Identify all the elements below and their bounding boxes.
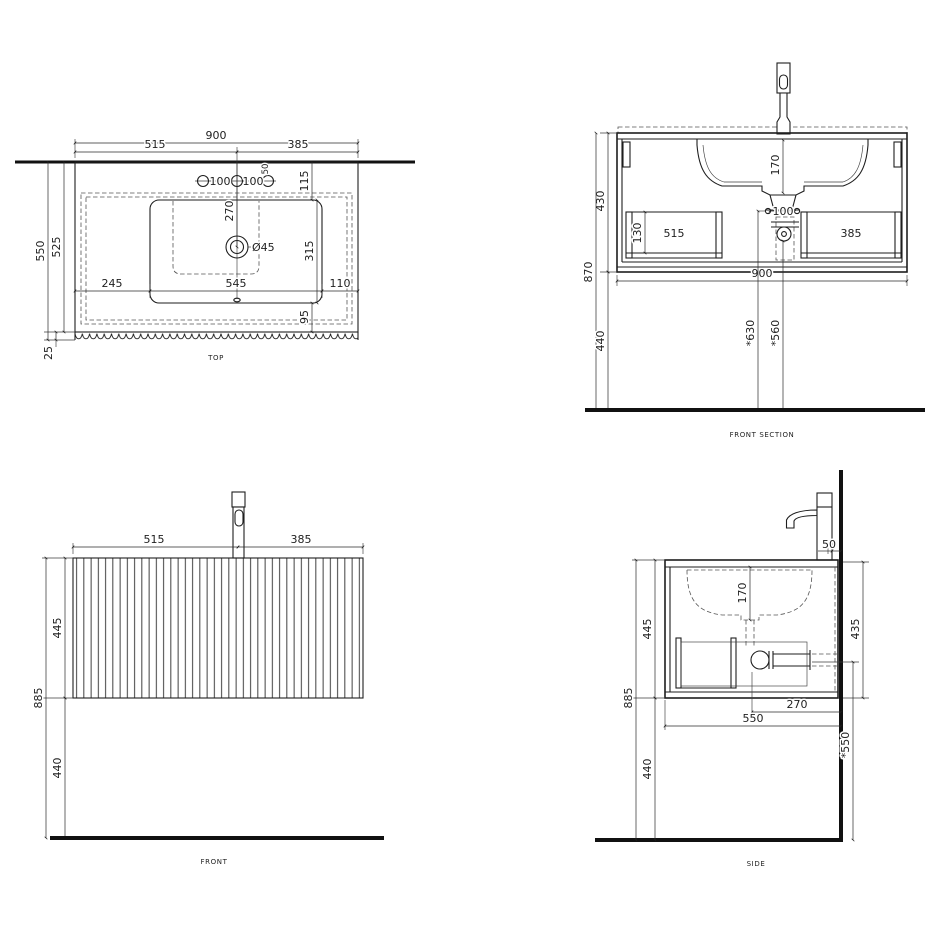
- trap-nut: [771, 222, 799, 227]
- top-view-title: TOP: [207, 354, 224, 362]
- f-dim-mount-height: 885: [32, 688, 45, 709]
- wall-bracket-right: [894, 142, 901, 167]
- f-dim-floor-clearance: 440: [51, 758, 64, 779]
- screw-right: [794, 208, 799, 213]
- drawer-back-panel: [731, 638, 736, 688]
- faucet-stem: [777, 93, 790, 134]
- fs-dim-right-drawer: 385: [841, 227, 862, 240]
- cabinet-outline: [665, 560, 838, 698]
- top-dim-left-margin: 245: [102, 277, 123, 290]
- trap-body: [751, 651, 769, 669]
- waste-pipe: [769, 650, 810, 670]
- top-dim-side-hole-dia: 50: [261, 164, 271, 175]
- f-dim-right-span: 385: [291, 533, 312, 546]
- faucet-lever-slot: [235, 510, 243, 526]
- fs-dim-basin-depth: 170: [769, 155, 782, 176]
- trap-outlet-center: [782, 232, 787, 237]
- trap-outlet: [777, 227, 791, 241]
- side-walls-inner: [622, 139, 902, 262]
- top-dim-hole-gap-b: 100: [243, 175, 264, 188]
- s-dim-waste-height: *550: [839, 732, 852, 759]
- front-section-title: FRONT SECTION: [730, 431, 795, 439]
- s-dim-basin-depth: 170: [736, 583, 749, 604]
- wall-bracket-left: [623, 142, 630, 167]
- fluted-front-panel: [73, 558, 363, 698]
- s-dim-depth-total: 550: [743, 712, 764, 725]
- drawer-right-side-b: [895, 212, 901, 258]
- fs-dim-outlet-b: *560: [769, 320, 782, 347]
- waste-pipe-hidden: [812, 654, 837, 666]
- top-dim-right-span: 385: [288, 138, 309, 151]
- front-view: 515 385 445 885 440 FRONT: [32, 492, 384, 866]
- ext-bottom: [665, 672, 752, 730]
- f-dim-left-span: 515: [144, 533, 165, 546]
- top-view: 900 515 385 100 100 50 115 270 315 95 55…: [15, 129, 415, 362]
- overflow-slot: [234, 298, 240, 302]
- top-dim-total-width: 900: [206, 129, 227, 142]
- basin-bowl-outer: [697, 145, 868, 195]
- side-view-title: SIDE: [747, 860, 766, 868]
- drawer-box-side: [681, 642, 807, 686]
- faucet-lever-slot: [780, 75, 788, 89]
- fs-dim-total-height: 870: [582, 262, 595, 283]
- front-view-title: FRONT: [201, 858, 228, 866]
- counter-hidden-outline: [618, 127, 907, 133]
- front-section-view: 130 515 385 170 100 430 870 440 900 *630…: [582, 63, 925, 439]
- s-dim-cabinet-height: 445: [641, 619, 654, 640]
- drawer-front-panel: [676, 638, 681, 688]
- fs-dim-outlet-a: *630: [744, 320, 757, 347]
- s-dim-drain-to-wall: 270: [787, 698, 808, 711]
- s-dim-inner-height: 435: [849, 619, 862, 640]
- basin-rim-steps: [697, 139, 868, 145]
- top-dim-wall-to-drain: 270: [223, 201, 236, 222]
- top-dim-depth-body: 525: [50, 237, 63, 258]
- hidden-bowl: [173, 201, 259, 274]
- ext-left: [44, 332, 75, 340]
- top-dim-drain-dia: Ø45: [252, 241, 275, 254]
- faucet-spout: [787, 510, 818, 528]
- fs-dim-total-width: 900: [752, 267, 773, 280]
- s-dim-floor-clearance: 440: [641, 759, 654, 780]
- drain-pipe-hidden: [746, 620, 754, 648]
- f-dim-cabinet-height: 445: [51, 618, 64, 639]
- fs-dim-left-drawer: 515: [664, 227, 685, 240]
- screw-left: [765, 208, 770, 213]
- faucet-top: [232, 492, 245, 507]
- top-dim-left-span: 515: [145, 138, 166, 151]
- basin-bowl-hidden: [687, 570, 812, 620]
- top-dim-cutout-width: 545: [226, 277, 247, 290]
- vanity-drawing-svg: 900 515 385 100 100 50 115 270 315 95 55…: [0, 0, 950, 950]
- cabinet-outline: [617, 133, 907, 272]
- top-dim-back-offset: 115: [298, 171, 311, 192]
- s-dim-tap-wall-gap: 50: [822, 538, 836, 551]
- fs-dim-floor-clearance: 440: [594, 331, 607, 352]
- cabinet-inner-lines: [665, 567, 838, 692]
- fs-dim-drawer-inner: 130: [631, 223, 644, 244]
- technical-drawing-page: 900 515 385 100 100 50 115 270 315 95 55…: [0, 0, 950, 950]
- top-dim-front-edge: 25: [42, 346, 55, 360]
- drawer-left-side-b: [716, 212, 722, 258]
- fs-dim-screw-gap: 100: [773, 205, 794, 218]
- top-dim-right-margin: 110: [330, 277, 351, 290]
- top-dim-depth-total: 550: [34, 241, 47, 262]
- side-view: 50 170 445 885 440 435 270 550 *550 SIDE: [595, 470, 869, 868]
- fluted-front-edge: [75, 332, 358, 341]
- drawer-right-side-a: [801, 212, 807, 258]
- top-dim-hole-gap-a: 100: [210, 175, 231, 188]
- top-dim-cutout-front: 95: [298, 310, 311, 324]
- s-dim-mount-height: 885: [622, 688, 635, 709]
- top-dim-cutout-depth: 315: [303, 241, 316, 262]
- ext-top: [73, 543, 363, 554]
